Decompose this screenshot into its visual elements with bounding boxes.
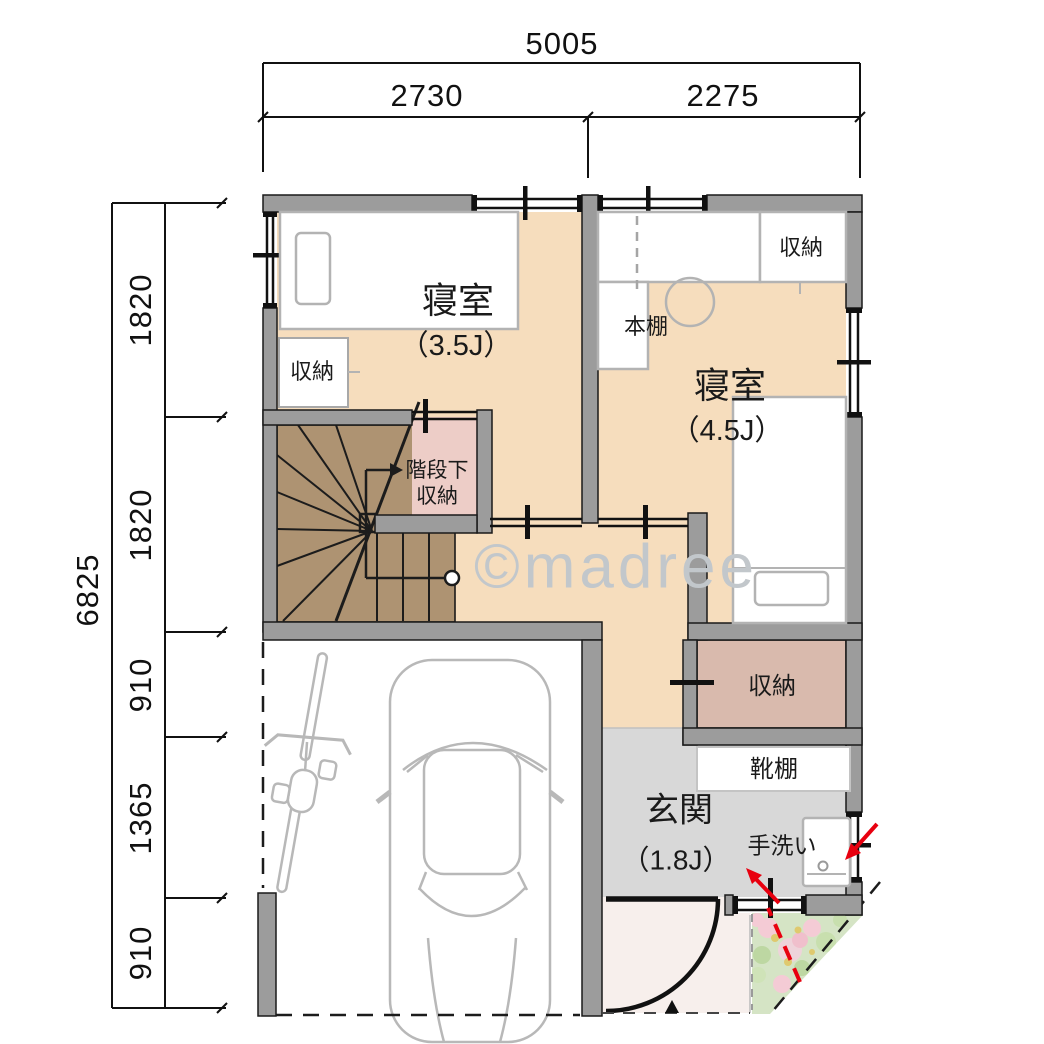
- dim-left-total: 6825: [71, 554, 105, 627]
- wall-bedroom35-south: [263, 410, 412, 425]
- wall-between-bedrooms: [582, 195, 598, 523]
- car-rear-window: [419, 888, 525, 916]
- shoe-shelf-label: 靴棚: [750, 757, 798, 783]
- wall-left: [263, 308, 277, 632]
- wall-stairstorage-east: [477, 410, 492, 533]
- dim-top-total: 5005: [526, 27, 599, 61]
- bedroom35-size: （3.5J）: [400, 331, 513, 363]
- car-body: [390, 660, 550, 1042]
- wall-bedroom45-south: [688, 623, 862, 640]
- car-mirror-left: [377, 792, 390, 802]
- bicycle-seat: [286, 768, 319, 814]
- dim-left-seg-3: 910: [124, 658, 158, 713]
- car-roof: [424, 750, 520, 874]
- bedroom35-name: 寝室: [422, 281, 494, 321]
- bicycle-front-wheel: [300, 653, 328, 761]
- hand-wash-label: 手洗い: [748, 833, 817, 858]
- bicycle-pedal-left: [271, 783, 290, 804]
- car: [377, 660, 563, 1042]
- bedroom45-size: （4.5J）: [671, 416, 784, 448]
- bedroom35-closet-label: 収納: [290, 360, 334, 384]
- wall-midstorage-south: [683, 728, 862, 745]
- bookshelf-label: 本棚: [624, 315, 668, 339]
- wall-entrance-stub: [725, 895, 733, 915]
- entrance-size: （1.8J）: [622, 846, 731, 877]
- floor-plan-page: ©madree 5005 2730 2275 6825 1820 1820 91…: [0, 0, 1044, 1044]
- pillow-bedroom35: [296, 233, 330, 304]
- bicycle: [240, 646, 367, 899]
- wall-stairstorage-south: [375, 515, 477, 533]
- wall-top-left: [263, 195, 472, 212]
- dim-left-seg-2: 1820: [124, 489, 158, 562]
- bedroom45-closet-label: 収納: [779, 236, 823, 260]
- watermark: ©madree: [474, 532, 758, 603]
- bicycle-pedal-right: [318, 760, 337, 781]
- dim-left-seg-4: 1365: [124, 782, 158, 855]
- dim-top-seg-2: 2275: [687, 79, 760, 113]
- door-mid-storage: [670, 680, 714, 685]
- car-mirror-right: [550, 792, 563, 802]
- stair-storage-line1: 階段下: [406, 458, 469, 484]
- stair-storage-label: 階段下 収納: [406, 458, 469, 510]
- wall-right-upper: [846, 212, 862, 308]
- desk-bedroom45: [598, 212, 760, 282]
- wall-garage-stub: [258, 893, 276, 1016]
- wall-entrance-south: [806, 895, 862, 915]
- stair-storage-line2: 収納: [406, 484, 469, 510]
- dim-top-seg-1: 2730: [391, 79, 464, 113]
- bedroom45-name: 寝室: [694, 366, 766, 406]
- dim-left-seg-1: 1820: [124, 274, 158, 347]
- entrance-name: 玄関: [645, 792, 713, 829]
- wall-garage-east: [582, 640, 602, 1016]
- dim-left-seg-5: 910: [124, 926, 158, 981]
- wall-garage-north: [263, 622, 602, 640]
- mid-storage-label: 収納: [748, 674, 796, 700]
- pillow-bedroom45: [755, 572, 828, 605]
- wall-top-right: [707, 195, 862, 212]
